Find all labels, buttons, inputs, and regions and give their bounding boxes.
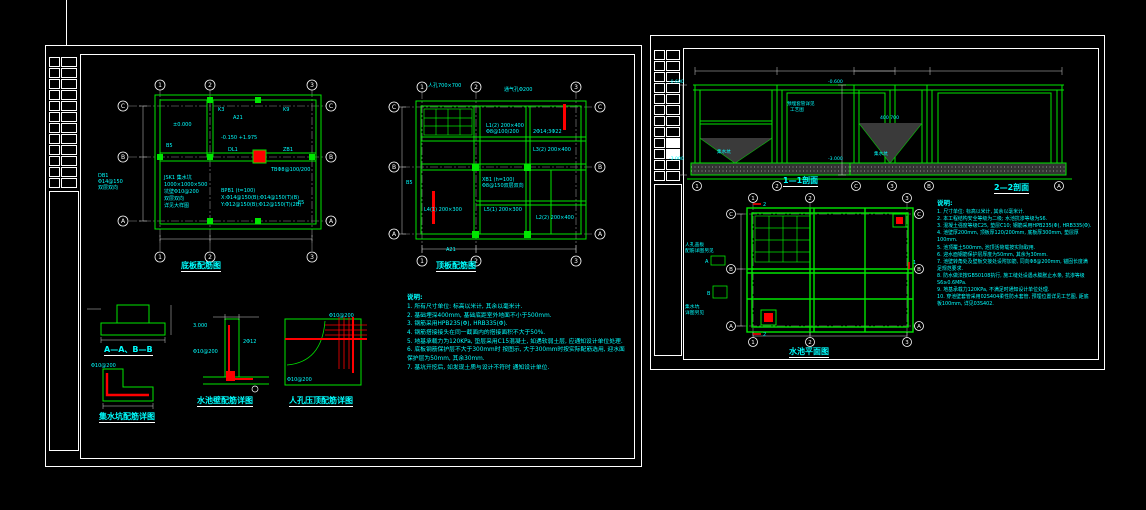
note-line: 6. 迎水面钢筋保护层厚度为50mm, 其余为30mm. — [937, 252, 1092, 259]
svg-text:2: 2 — [808, 340, 812, 346]
svg-text:C: C — [917, 212, 921, 218]
svg-text:-0.600: -0.600 — [828, 79, 843, 85]
svg-text:Y:Φ12@150(B);Φ12@150(T)(2B): Y:Φ12@150(B);Φ12@150(T)(2B) — [220, 202, 301, 208]
svg-text:-0.600: -0.600 — [669, 79, 684, 85]
svg-text:通气孔Φ200: 通气孔Φ200 — [504, 86, 532, 93]
svg-text:Φ10@200: Φ10@200 — [329, 313, 354, 319]
left-title-strip-blank — [49, 191, 79, 451]
plan2-top-slab-figure: 1 2 3 1 2 3 C B A C B A 人孔700×700 通气孔Φ20… — [386, 79, 611, 269]
svg-text:-3.000: -3.000 — [828, 156, 843, 162]
right-title-strip-blank — [654, 184, 682, 356]
note-line: 8. 防水做法按GB50108执行, 施工缝处设遇水膨胀止水条, 抗渗等级S6≥… — [937, 273, 1092, 287]
svg-text:2: 2 — [775, 184, 779, 190]
left-drawing-sheet[interactable]: 1 2 3 1 2 3 C B A C B A ±0.000 -0.150 +1… — [45, 45, 642, 467]
note-line: 6. 底板钢筋保护层不大于300mm时 按图示, 大于300mm时按实际配筋选用… — [407, 346, 629, 363]
svg-text:集水坑: 集水坑 — [685, 303, 700, 310]
svg-text:2: 2 — [763, 202, 766, 208]
svg-text:TBΦ8@100/200: TBΦ8@100/200 — [270, 167, 310, 173]
svg-text:±0.000: ±0.000 — [173, 122, 192, 128]
svg-text:2Φ12: 2Φ12 — [243, 339, 256, 345]
svg-text:A21: A21 — [446, 247, 456, 253]
cad-viewport[interactable]: 1 2 3 1 2 3 C B A C B A ±0.000 -0.150 +1… — [0, 0, 1146, 510]
svg-text:C: C — [392, 104, 396, 111]
note-line: 4. 钢筋搭接接头在同一截面内的搭接面积不大于50%. — [407, 329, 629, 338]
note-line: 3. 钢筋采用HPB235(Φ), HRB335(Φ). — [407, 320, 629, 329]
section-2-2-title: 2—2剖面 — [994, 184, 1029, 194]
detail-aab-figure — [87, 297, 179, 343]
tank-plan-figure: 1 2 3 1 2 3 C B A C B A 2 2 1 — [685, 194, 923, 346]
tank-plan-dimension-lines — [737, 214, 907, 340]
svg-text:JSK1 集水坑: JSK1 集水坑 — [163, 174, 192, 181]
section-1-1-title: 1—1剖面 — [783, 177, 818, 187]
plan2-title: 顶板配筋图 — [436, 262, 476, 272]
section-2-2-figure: C B A -0.600 -3.000 400 700 集水坑 — [844, 63, 1072, 191]
note-line: 5. 地基承载力为120KPa, 垫层采用C15混凝土, 如遇软弱土层, 应通知… — [407, 338, 629, 347]
svg-text:1: 1 — [158, 82, 162, 89]
wall-rebar-anchor — [226, 371, 235, 381]
sec22-hopper-fill — [859, 123, 922, 163]
detail-pit-title: 集水坑配筋详图 — [99, 413, 155, 423]
svg-text:B: B — [392, 164, 396, 171]
right-notes-heading: 说明: — [937, 197, 1092, 207]
svg-text:详见大样图: 详见大样图 — [164, 202, 189, 209]
svg-text:B: B — [598, 164, 602, 171]
svg-text:-0.150 +1.975: -0.150 +1.975 — [221, 135, 257, 141]
svg-text:工艺图: 工艺图 — [790, 107, 804, 113]
svg-text:3.000: 3.000 — [193, 323, 207, 329]
plan1-highlight-column — [253, 150, 266, 163]
detail-corner-title: 人孔压顶配筋详图 — [289, 397, 353, 407]
tank-plan-grid-lines — [735, 202, 917, 338]
svg-text:集水坑: 集水坑 — [874, 150, 888, 157]
sec11-hopper-fill — [700, 138, 772, 163]
note-line: 7. 基坑开挖后, 如发现土质与设计不符时 通知设计单位. — [407, 364, 629, 373]
svg-text:1000×1000×500: 1000×1000×500 — [164, 182, 207, 188]
tank-plan-title: 水池平面图 — [789, 348, 829, 358]
svg-text:A: A — [917, 324, 921, 330]
svg-text:1: 1 — [158, 254, 162, 261]
svg-text:1: 1 — [751, 340, 755, 346]
svg-text:BPB1 (t=100): BPB1 (t=100) — [221, 188, 255, 194]
tank-plan-detail-flags: A B — [705, 256, 727, 298]
note-line: 4. 池壁厚200mm, 顶板厚120/200mm, 底板厚300mm, 垫层厚… — [937, 230, 1092, 244]
svg-text:Φ10@200: Φ10@200 — [91, 363, 116, 369]
svg-text:A21: A21 — [233, 115, 243, 121]
left-notes-heading: 说明: — [407, 291, 629, 301]
svg-text:L3(2) 200×400: L3(2) 200×400 — [533, 147, 571, 153]
note-line: 5. 池顶覆土500mm, 池顶活荷载按实际取用. — [937, 245, 1092, 252]
svg-text:ZB1: ZB1 — [283, 147, 293, 153]
note-line: 1. 所有尺寸单位: 标高以米计, 其余以毫米计. — [407, 303, 629, 312]
note-line: 2. 基础埋深400mm, 基础底距室外地面不小于500mm. — [407, 312, 629, 321]
svg-text:X:Φ14@150(B);Φ14@150(T)(B): X:Φ14@150(B);Φ14@150(T)(B) — [221, 195, 299, 201]
svg-text:双层双向: 双层双向 — [98, 184, 118, 191]
plan1-bottom-slab-figure: 1 2 3 1 2 3 C B A C B A ±0.000 -0.150 +1… — [133, 79, 363, 264]
svg-text:B5: B5 — [406, 180, 413, 186]
svg-text:1: 1 — [751, 196, 755, 202]
svg-text:A: A — [705, 259, 709, 265]
svg-text:C: C — [729, 212, 733, 218]
svg-text:C: C — [854, 184, 858, 190]
svg-text:坑壁Φ10@200: 坑壁Φ10@200 — [164, 188, 199, 195]
svg-text:Φ8@100/200: Φ8@100/200 — [486, 129, 519, 135]
svg-text:Φ10@200: Φ10@200 — [193, 349, 218, 355]
svg-text:3: 3 — [310, 254, 314, 261]
svg-text:B: B — [927, 184, 931, 190]
svg-text:K3: K3 — [218, 107, 224, 113]
plan1-title: 底板配筋图 — [181, 262, 221, 272]
svg-text:C: C — [329, 103, 333, 110]
plan2-annotations: 人孔700×700 通气孔Φ200 L1(2) 200×400 Φ8@100/2… — [406, 82, 574, 253]
svg-text:A: A — [729, 324, 733, 330]
right-notes-block: 说明: 1. 尺寸单位: 标高以米计, 其余以毫米计. 2. 本工程结构安全等级… — [937, 197, 1092, 309]
svg-text:3: 3 — [574, 258, 578, 265]
detail-corner-figure: Φ10@200 Φ10@200 — [281, 313, 369, 391]
svg-text:2Φ14;3Φ22: 2Φ14;3Φ22 — [533, 129, 562, 135]
tank-plan-section-markers: 2 2 1 — [753, 202, 916, 338]
svg-text:预埋套管详见: 预埋套管详见 — [787, 100, 815, 107]
left-title-strip — [48, 56, 78, 188]
svg-text:1: 1 — [420, 84, 424, 91]
frame-artifact-line — [66, 0, 67, 46]
tank-plan-grid-bubbles: 1 2 3 1 2 3 C B A C B A — [727, 194, 924, 347]
svg-text:Φ10@200: Φ10@200 — [287, 377, 312, 383]
plan2-waffle-grid — [424, 109, 472, 135]
svg-text:B: B — [707, 291, 711, 297]
svg-text:Φ8@150双层双向: Φ8@150双层双向 — [482, 182, 524, 189]
svg-text:2: 2 — [474, 84, 478, 91]
svg-text:B: B — [121, 154, 125, 161]
svg-text:2: 2 — [808, 196, 812, 202]
svg-text:1: 1 — [913, 260, 916, 266]
detail-wall-figure: 3.000 Φ10@200 2Φ12 — [193, 313, 278, 395]
detail-aab-title: A—A、B—B — [104, 346, 153, 356]
svg-text:3: 3 — [905, 196, 909, 202]
svg-text:3: 3 — [905, 340, 909, 346]
svg-text:1: 1 — [695, 184, 699, 190]
svg-text:3: 3 — [310, 82, 314, 89]
svg-text:2: 2 — [763, 332, 766, 338]
sec22-dimension-lines — [838, 67, 1062, 175]
note-line: 7. 池壁转角处及壁板交接处设附加筋, 同向Φ8@200mm, 锚固长度满足规范… — [937, 259, 1092, 273]
svg-text:配筋详图另见: 配筋详图另见 — [685, 247, 714, 254]
detail-wall-title: 水池壁配筋详图 — [197, 397, 253, 407]
svg-text:B: B — [729, 267, 733, 273]
svg-text:L2(2) 200×400: L2(2) 200×400 — [536, 215, 574, 221]
svg-text:L4(1) 200×300: L4(1) 200×300 — [424, 207, 462, 213]
svg-text:C: C — [598, 104, 602, 111]
svg-text:A: A — [1057, 184, 1061, 190]
plan2-grid-lines — [388, 91, 604, 255]
svg-text:1: 1 — [420, 258, 424, 265]
sec22-grid-bubbles: C B A — [852, 182, 1064, 191]
svg-text:集水坑: 集水坑 — [717, 148, 731, 155]
svg-text:E5: E5 — [298, 200, 304, 206]
detail-pit-figure: Φ10@200 — [91, 361, 161, 409]
svg-text:详图另见: 详图另见 — [685, 309, 704, 316]
svg-text:人孔700×700: 人孔700×700 — [428, 82, 461, 89]
svg-text:400 700: 400 700 — [880, 115, 899, 121]
svg-text:L5(1) 200×300: L5(1) 200×300 — [484, 207, 522, 213]
sec22-bottom-slab — [850, 163, 1066, 175]
svg-text:K9: K9 — [283, 107, 289, 113]
svg-text:C: C — [121, 103, 125, 110]
right-drawing-sheet[interactable]: 1 2 3 -0.600 -3.000 预埋套管详见 工艺图 集水坑 1—1剖面 — [650, 35, 1105, 370]
svg-text:B5: B5 — [166, 143, 173, 149]
svg-text:双层双向: 双层双向 — [164, 195, 184, 202]
svg-text:-3.000: -3.000 — [669, 156, 684, 162]
svg-text:人孔盖板: 人孔盖板 — [685, 241, 704, 248]
tank-plan-annotations: 人孔盖板 配筋详图另见 集水坑 详图另见 — [685, 241, 714, 316]
svg-text:2: 2 — [208, 82, 212, 89]
svg-text:B: B — [329, 154, 333, 161]
svg-text:B: B — [917, 267, 921, 273]
svg-text:DL1: DL1 — [228, 147, 238, 153]
svg-text:3: 3 — [574, 84, 578, 91]
note-line: 10. 穿池壁套管采用02S404柔性防水套管, 预埋位置详见工艺图, 距底板1… — [937, 294, 1092, 308]
left-notes-block: 说明: 1. 所有尺寸单位: 标高以米计, 其余以毫米计. 2. 基础埋深400… — [407, 291, 629, 373]
tank-plan-waffle — [755, 216, 810, 262]
